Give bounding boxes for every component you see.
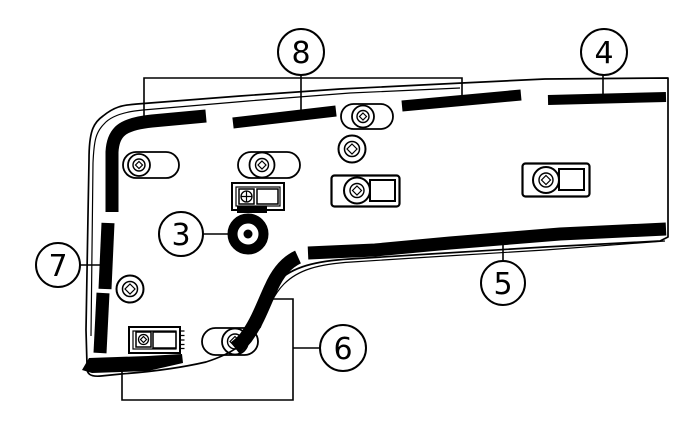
callout-6-label: 6 bbox=[333, 332, 352, 367]
callout-7-label: 7 bbox=[48, 249, 67, 284]
band-top-2 bbox=[233, 111, 336, 123]
callout-8: 8 bbox=[278, 29, 324, 75]
callout-4: 4 bbox=[581, 29, 627, 75]
grommet-center bbox=[244, 230, 253, 239]
callout-7: 7 bbox=[36, 243, 80, 287]
pin-clip-icon bbox=[117, 276, 144, 303]
callout-4-label: 4 bbox=[594, 36, 613, 71]
diagram-page: 8 4 3 7 5 6 bbox=[0, 0, 687, 439]
oval-clip-icon bbox=[123, 152, 179, 178]
band-bottom-dash bbox=[82, 354, 183, 373]
grommet-icon bbox=[233, 206, 268, 250]
band-s-curve bbox=[235, 257, 298, 348]
screw-clip-icon bbox=[232, 183, 284, 210]
band-top-left-corner bbox=[112, 116, 206, 212]
band-lower-sweep bbox=[308, 229, 666, 253]
oval-clip-icon bbox=[341, 104, 393, 129]
band-top-right bbox=[548, 97, 666, 100]
band-left-2 bbox=[105, 223, 108, 289]
callout-3-label: 3 bbox=[171, 218, 190, 253]
callout-8-label: 8 bbox=[291, 36, 310, 71]
rect-clip-icon bbox=[523, 164, 590, 197]
callout-5: 5 bbox=[481, 261, 525, 305]
band-left-3 bbox=[100, 293, 103, 353]
rect-clip-icon bbox=[332, 176, 400, 207]
oval-clip-icon bbox=[238, 152, 300, 178]
callout-3: 3 bbox=[159, 212, 203, 256]
callout-6: 6 bbox=[320, 325, 366, 371]
callout-5-label: 5 bbox=[493, 267, 512, 302]
band-top-3 bbox=[402, 95, 521, 106]
pin-clip-icon bbox=[339, 136, 366, 163]
panel-diagram: 8 4 3 7 5 6 bbox=[0, 0, 687, 439]
screw-clip-icon bbox=[129, 327, 185, 353]
